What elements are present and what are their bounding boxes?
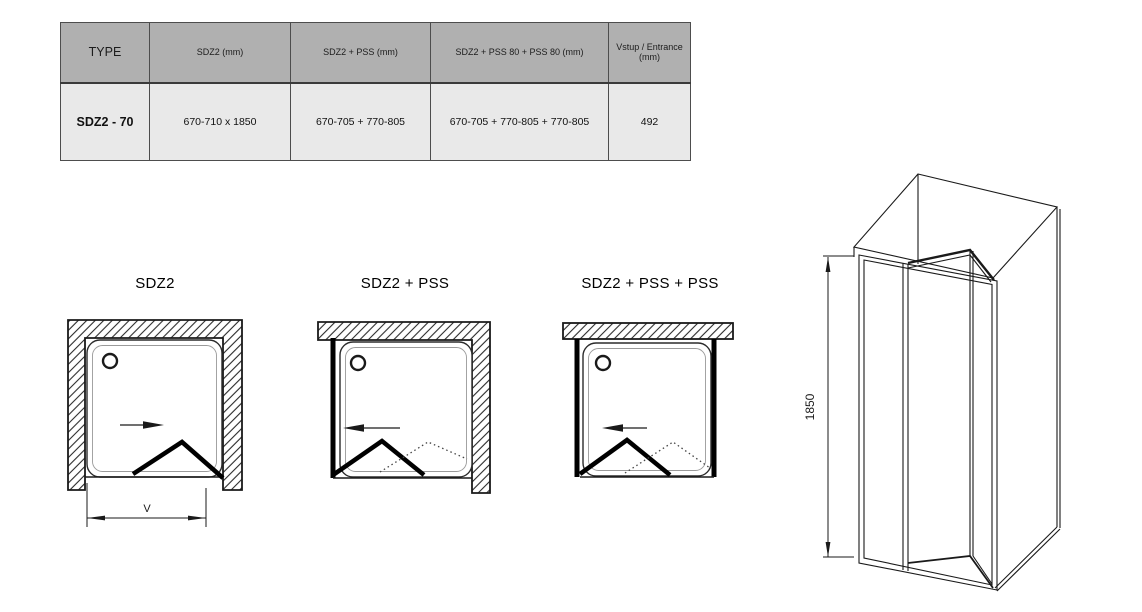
plan-view-sdz2-pss-pss [555, 295, 745, 535]
entrance-dimension-label: V [143, 503, 151, 515]
col-header-entrance: Vstup / Entrance (mm) [609, 23, 691, 83]
plan-view-sdz2-pss [310, 295, 500, 535]
door-frame [859, 255, 997, 590]
folded-panel-edge [970, 250, 973, 556]
col-header-type: TYPE [61, 23, 150, 83]
wall-top-bar [563, 323, 733, 339]
drain-icon [103, 354, 117, 368]
drain-icon [351, 356, 365, 370]
diagram-title: SDZ2 [60, 275, 250, 295]
diagram-sdz2-pss-pss: SDZ2 + PSS + PSS [555, 275, 745, 535]
diagram-title: SDZ2 + PSS + PSS [555, 275, 745, 295]
cell-type: SDZ2 - 70 [61, 83, 150, 161]
isometric-drawing: 1850 [790, 160, 1140, 612]
folded-panel-bottom [908, 556, 993, 588]
cell-sdz2-pss80-pss80: 670-705 + 770-805 + 770-805 [431, 83, 609, 161]
enclosure-top-opening [854, 174, 1057, 278]
drain-icon [596, 356, 610, 370]
cell-sdz2-pss: 670-705 + 770-805 [291, 83, 431, 161]
table-header-row: TYPE SDZ2 (mm) SDZ2 + PSS (mm) SDZ2 + PS… [61, 23, 691, 83]
table-row: SDZ2 - 70 670-710 x 1850 670-705 + 770-8… [61, 83, 691, 161]
door-center-hinge [903, 263, 908, 571]
diagram-sdz2: SDZ2 V [60, 275, 250, 535]
plan-view-sdz2: V [60, 295, 250, 535]
height-dimension-label: 1850 [803, 393, 817, 420]
diagram-sdz2-pss: SDZ2 + PSS [310, 275, 500, 535]
height-dimension [823, 256, 854, 557]
cell-entrance: 492 [609, 83, 691, 161]
col-header-sdz2-pss80-pss80: SDZ2 + PSS 80 + PSS 80 (mm) [431, 23, 609, 83]
spec-table: TYPE SDZ2 (mm) SDZ2 + PSS (mm) SDZ2 + PS… [60, 22, 691, 161]
cell-sdz2: 670-710 x 1850 [150, 83, 291, 161]
diagram-title: SDZ2 + PSS [310, 275, 500, 295]
col-header-sdz2-pss: SDZ2 + PSS (mm) [291, 23, 431, 83]
col-header-sdz2: SDZ2 (mm) [150, 23, 291, 83]
product-datasheet: TYPE SDZ2 (mm) SDZ2 + PSS (mm) SDZ2 + PS… [0, 0, 1142, 612]
